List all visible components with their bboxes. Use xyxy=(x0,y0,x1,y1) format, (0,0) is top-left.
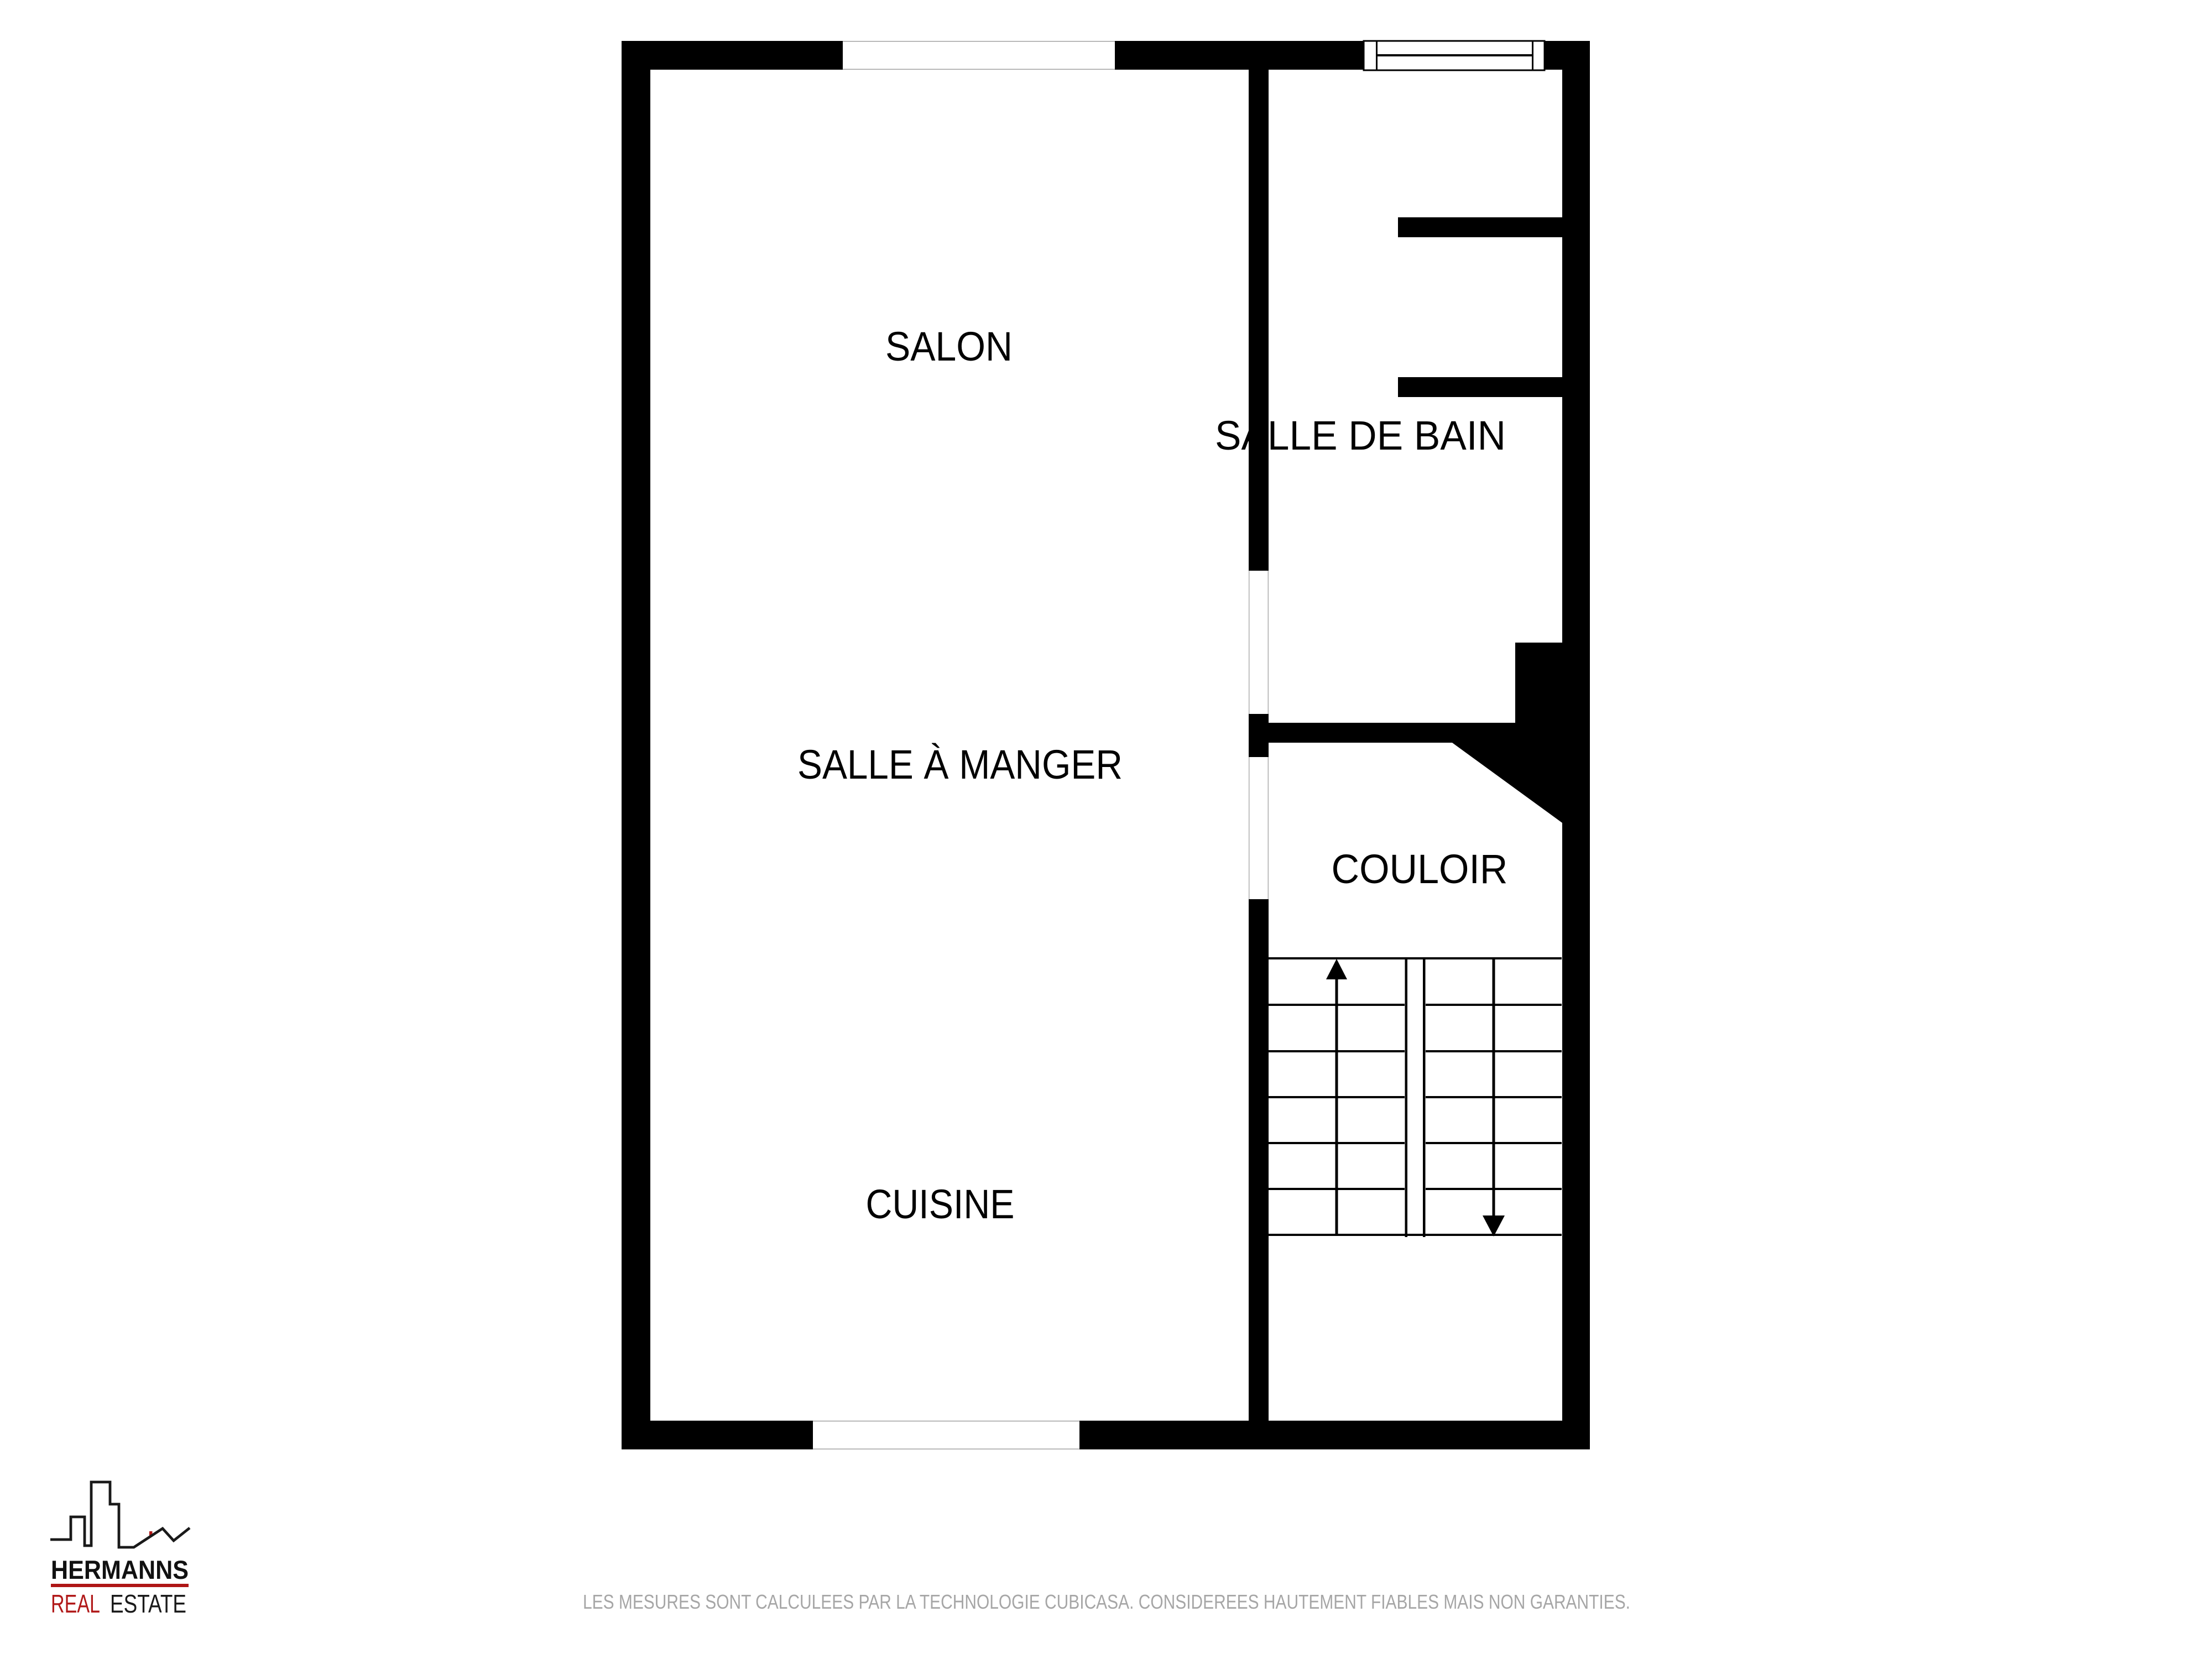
svg-text:LES MESURES SONT CALCULEES PAR: LES MESURES SONT CALCULEES PAR LA TECHNO… xyxy=(583,1590,1630,1613)
svg-text:REAL: REAL xyxy=(51,1589,100,1618)
svg-text:ESTATE: ESTATE xyxy=(110,1589,186,1618)
svg-text:CUISINE: CUISINE xyxy=(866,1181,1015,1227)
svg-text:HERMANNS: HERMANNS xyxy=(51,1555,189,1584)
svg-text:SALLE À MANGER: SALLE À MANGER xyxy=(797,742,1123,787)
svg-text:COULOIR: COULOIR xyxy=(1332,846,1508,892)
svg-text:SALON: SALON xyxy=(885,324,1013,369)
